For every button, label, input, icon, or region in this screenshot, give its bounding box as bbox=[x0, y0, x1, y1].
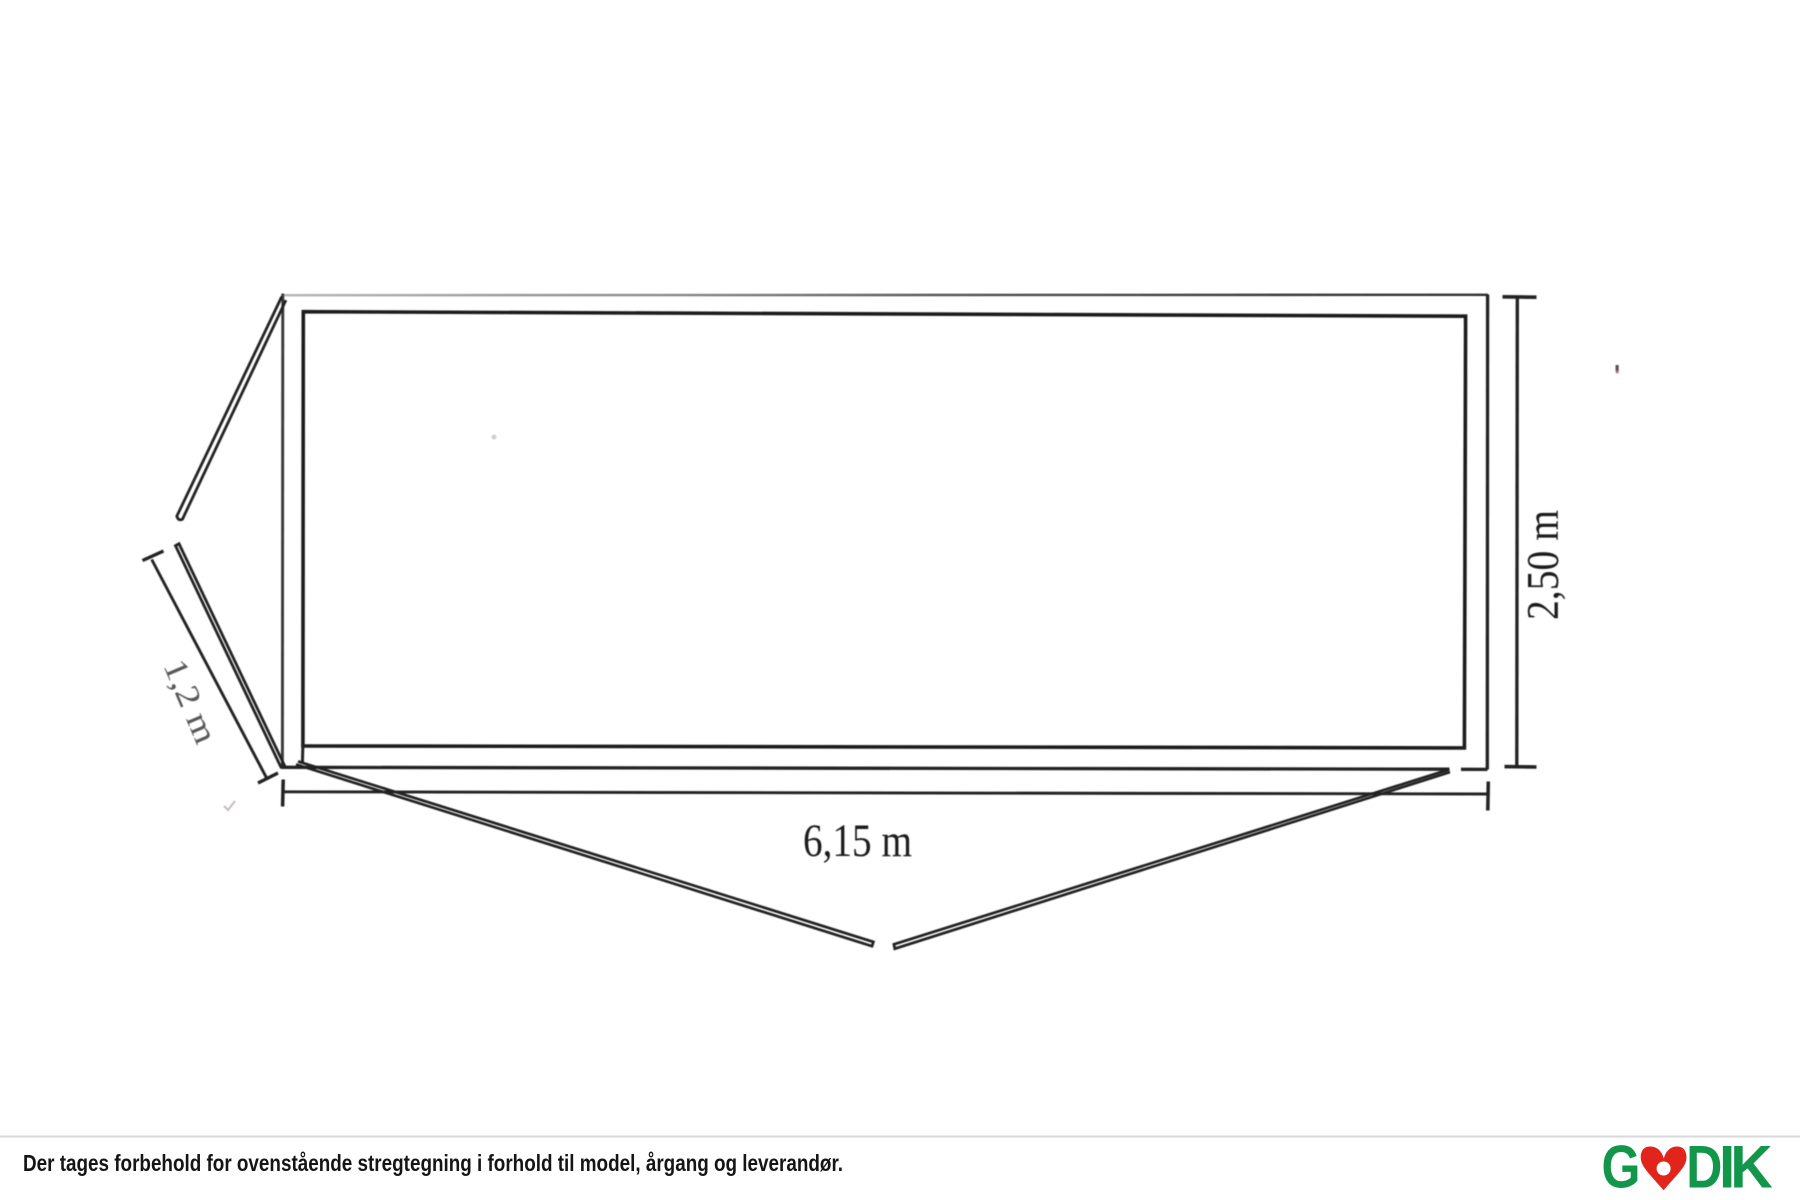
svg-text:D: D bbox=[1686, 1133, 1722, 1200]
svg-text:Der tages forbehold for ovenst: Der tages forbehold for ovenstående stre… bbox=[23, 1150, 843, 1176]
svg-text:K: K bbox=[1730, 1133, 1773, 1200]
svg-text:2,50 m: 2,50 m bbox=[1518, 510, 1568, 620]
svg-text:6,15 m: 6,15 m bbox=[803, 815, 912, 867]
svg-text:1,2 m: 1,2 m bbox=[156, 654, 224, 749]
svg-text:G: G bbox=[1602, 1133, 1641, 1200]
